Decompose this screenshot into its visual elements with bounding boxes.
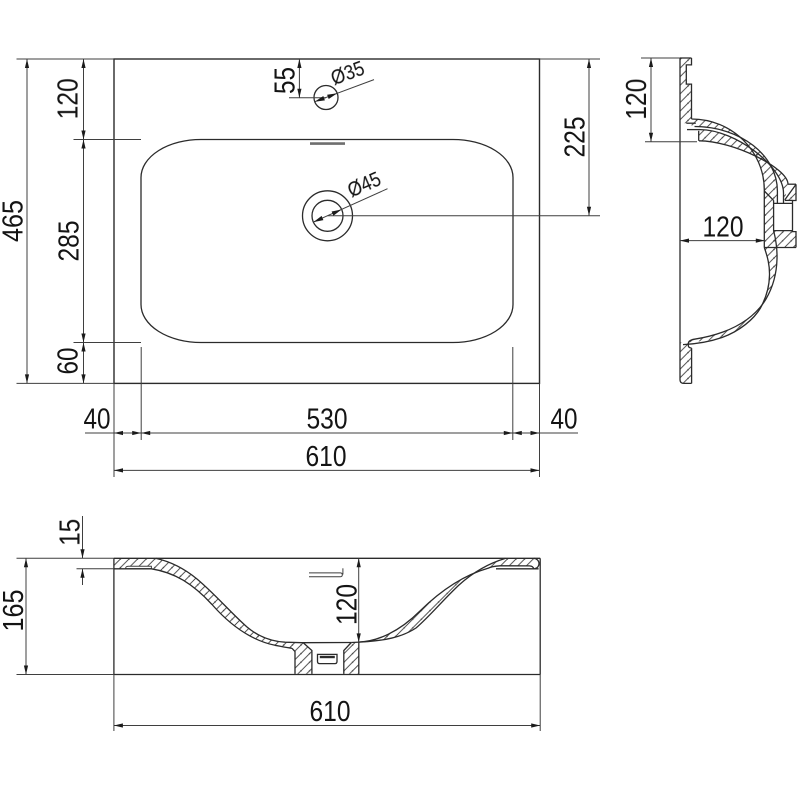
svg-text:120: 120 [621,79,653,120]
svg-text:120: 120 [703,211,744,243]
svg-text:165: 165 [0,590,30,632]
svg-text:120: 120 [53,78,85,119]
svg-text:55: 55 [270,67,302,94]
svg-text:285: 285 [54,221,86,262]
svg-text:Ø45: Ø45 [344,168,384,203]
svg-text:465: 465 [0,200,30,242]
svg-text:40: 40 [551,404,578,436]
svg-text:Ø35: Ø35 [328,57,368,90]
svg-text:60: 60 [53,348,85,375]
svg-text:40: 40 [84,404,111,436]
svg-text:530: 530 [307,404,348,436]
svg-text:610: 610 [310,696,351,728]
svg-text:15: 15 [55,519,87,546]
svg-text:610: 610 [306,441,347,473]
svg-text:225: 225 [560,117,592,158]
svg-text:120: 120 [332,584,364,625]
